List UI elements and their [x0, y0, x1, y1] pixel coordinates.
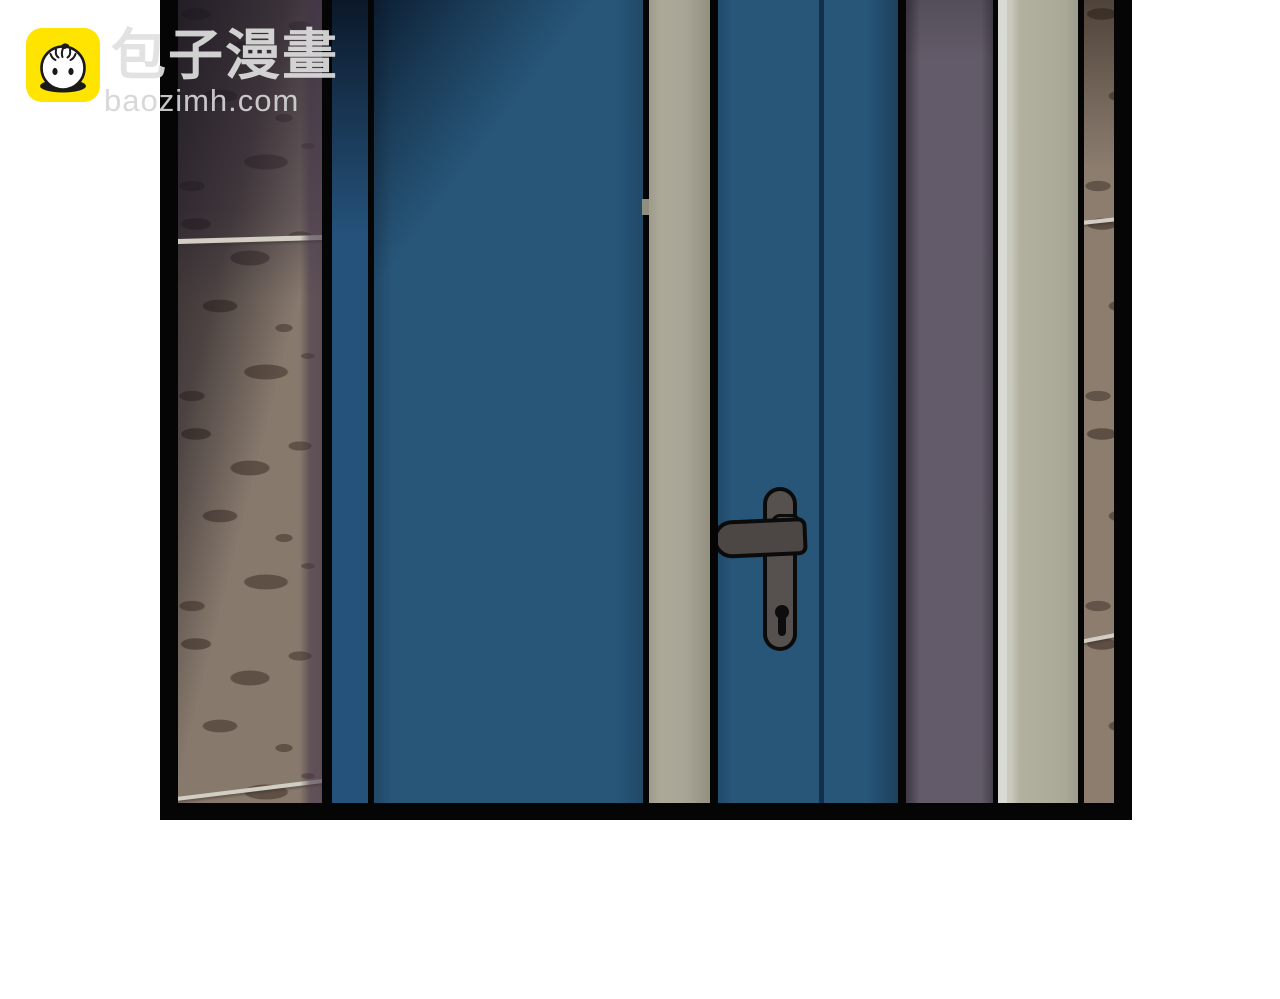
wall-left-purple-edge: [300, 0, 322, 803]
stile-top-shadow: [332, 0, 368, 803]
wall-purple-strip: [906, 0, 993, 803]
door-edge-shading: [718, 0, 898, 803]
door-frame-board: [649, 0, 710, 803]
wall-left-stone: [178, 0, 322, 803]
keyhole-icon: [778, 614, 786, 636]
door-left-stile: [332, 0, 368, 803]
wall-purple-shading: [906, 0, 993, 803]
watermark-brand-text: 包子漫畫: [111, 27, 531, 85]
door-handle-lever[interactable]: [718, 517, 808, 559]
door-right-panel: [718, 0, 898, 803]
door-left-panel: [374, 0, 643, 803]
baozi-bun-icon: [26, 28, 100, 102]
watermark-domain-text: baozimh.com: [104, 83, 524, 119]
door-handle-plate: [763, 487, 797, 651]
wall-right-shadow-overlay: [1084, 0, 1114, 803]
wall-trim-band: [998, 0, 1078, 803]
comic-panel: [160, 0, 1132, 820]
wall-right-stone: [1084, 0, 1114, 803]
door-edge-shading: [374, 0, 643, 803]
door-panel-seam: [819, 0, 824, 803]
